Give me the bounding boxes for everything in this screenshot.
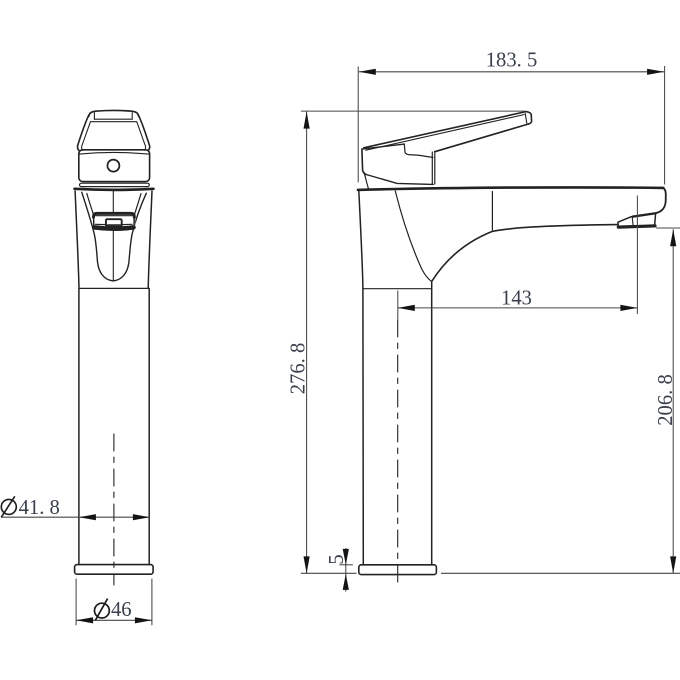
svg-text:276. 8: 276. 8 (287, 343, 309, 394)
svg-text:206. 8: 206. 8 (655, 374, 677, 425)
svg-text:183. 5: 183. 5 (486, 49, 537, 71)
svg-text:5: 5 (326, 554, 348, 564)
svg-text:143: 143 (501, 288, 532, 310)
svg-text:41. 8: 41. 8 (19, 497, 60, 519)
svg-text:46: 46 (111, 599, 132, 621)
